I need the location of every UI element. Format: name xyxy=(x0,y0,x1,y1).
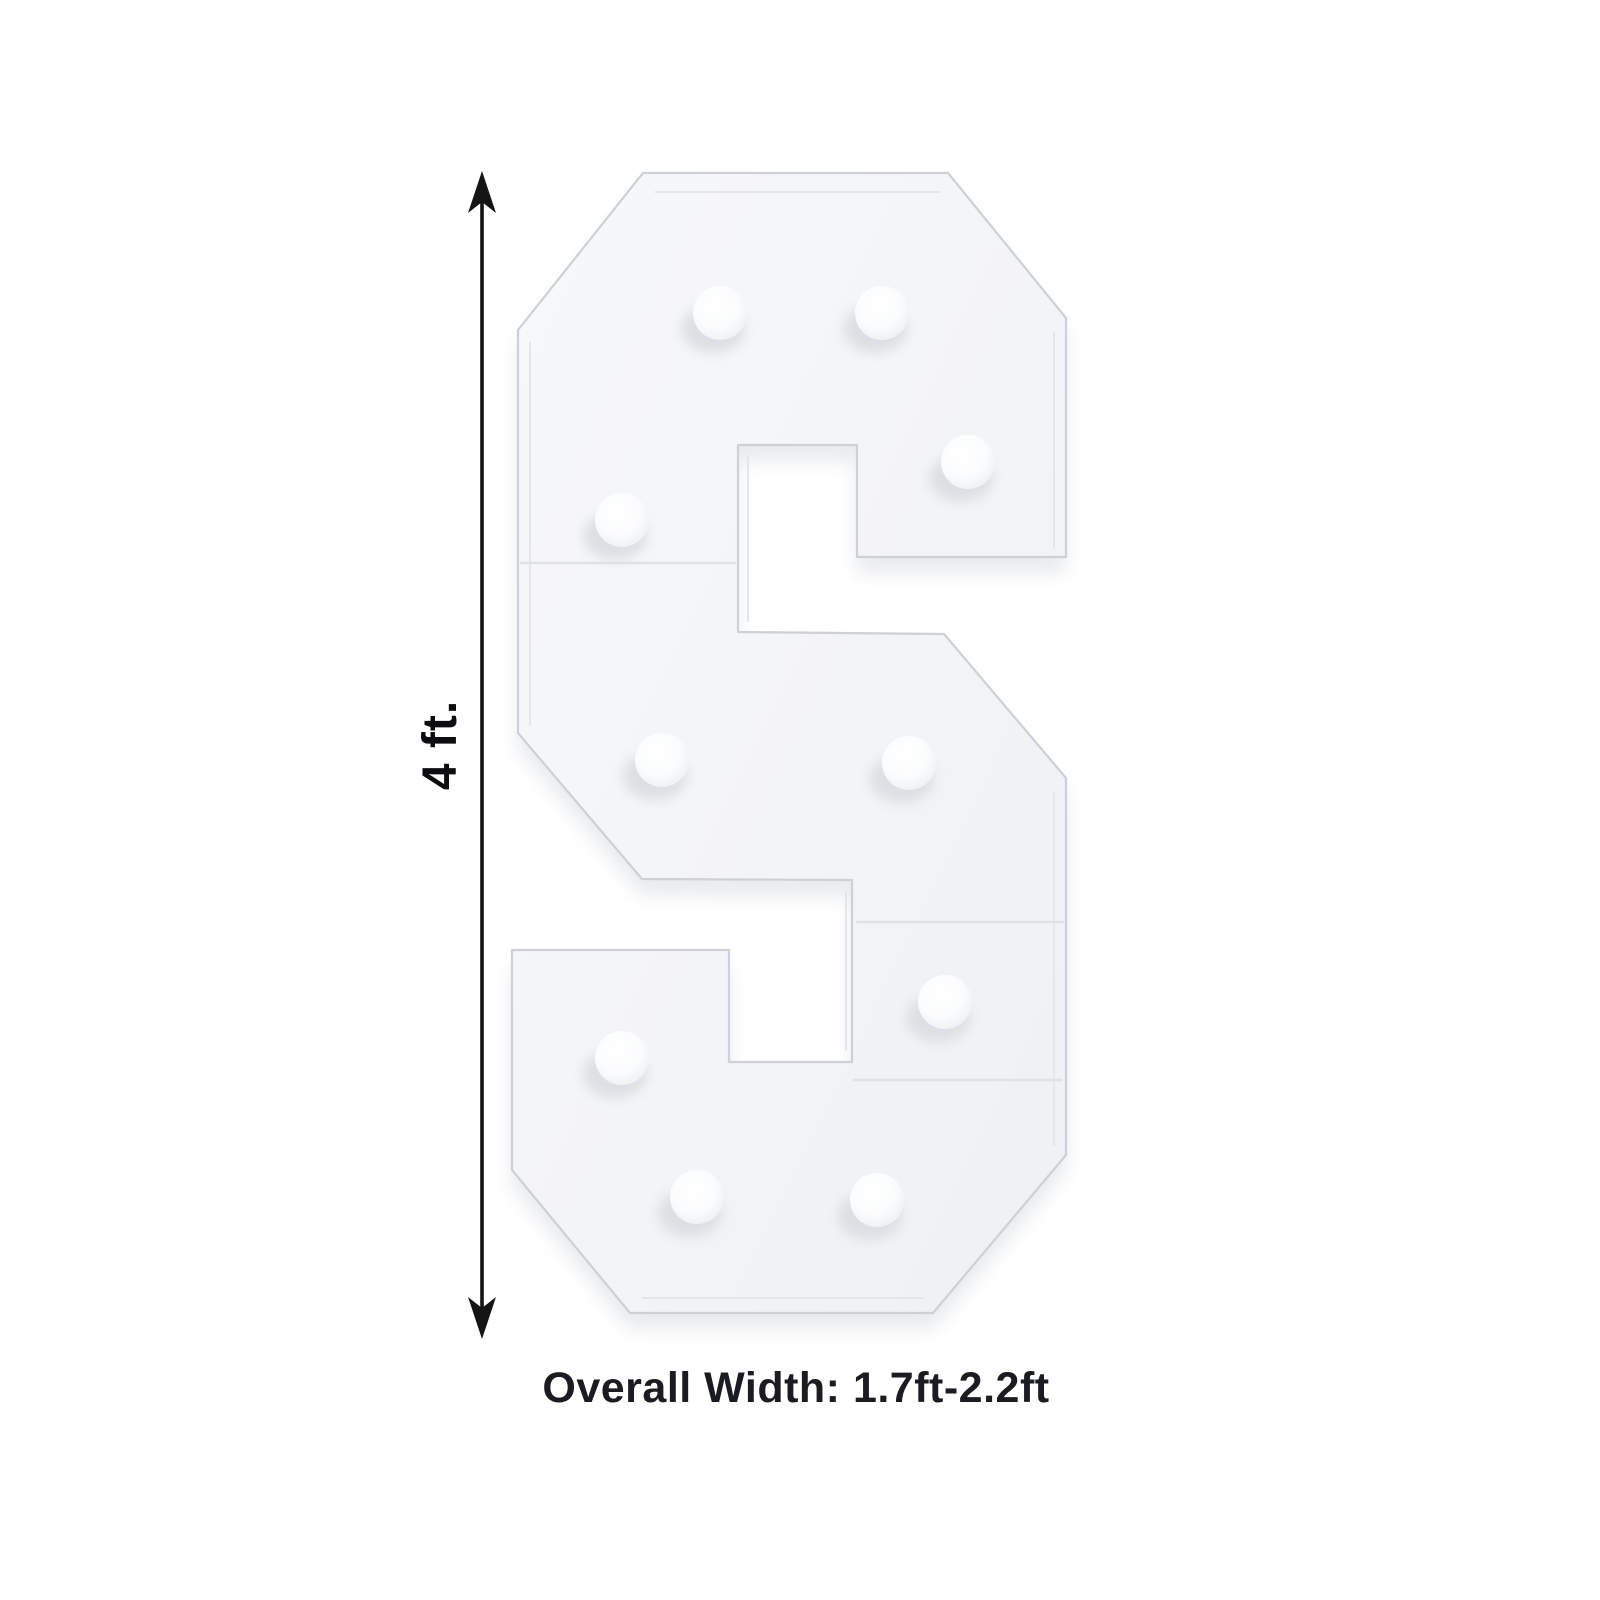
product-dimension-diagram: 4 ft. Overall Width: 1.7ft-2.2ft xyxy=(0,0,1600,1600)
marquee-letter-figure xyxy=(0,0,1600,1600)
width-dimension-caption: Overall Width: 1.7ft-2.2ft xyxy=(396,1364,1196,1413)
letter-face xyxy=(512,173,1066,1313)
marquee-letter-s xyxy=(512,173,1066,1313)
height-dimension-label: 4 ft. xyxy=(407,645,473,845)
